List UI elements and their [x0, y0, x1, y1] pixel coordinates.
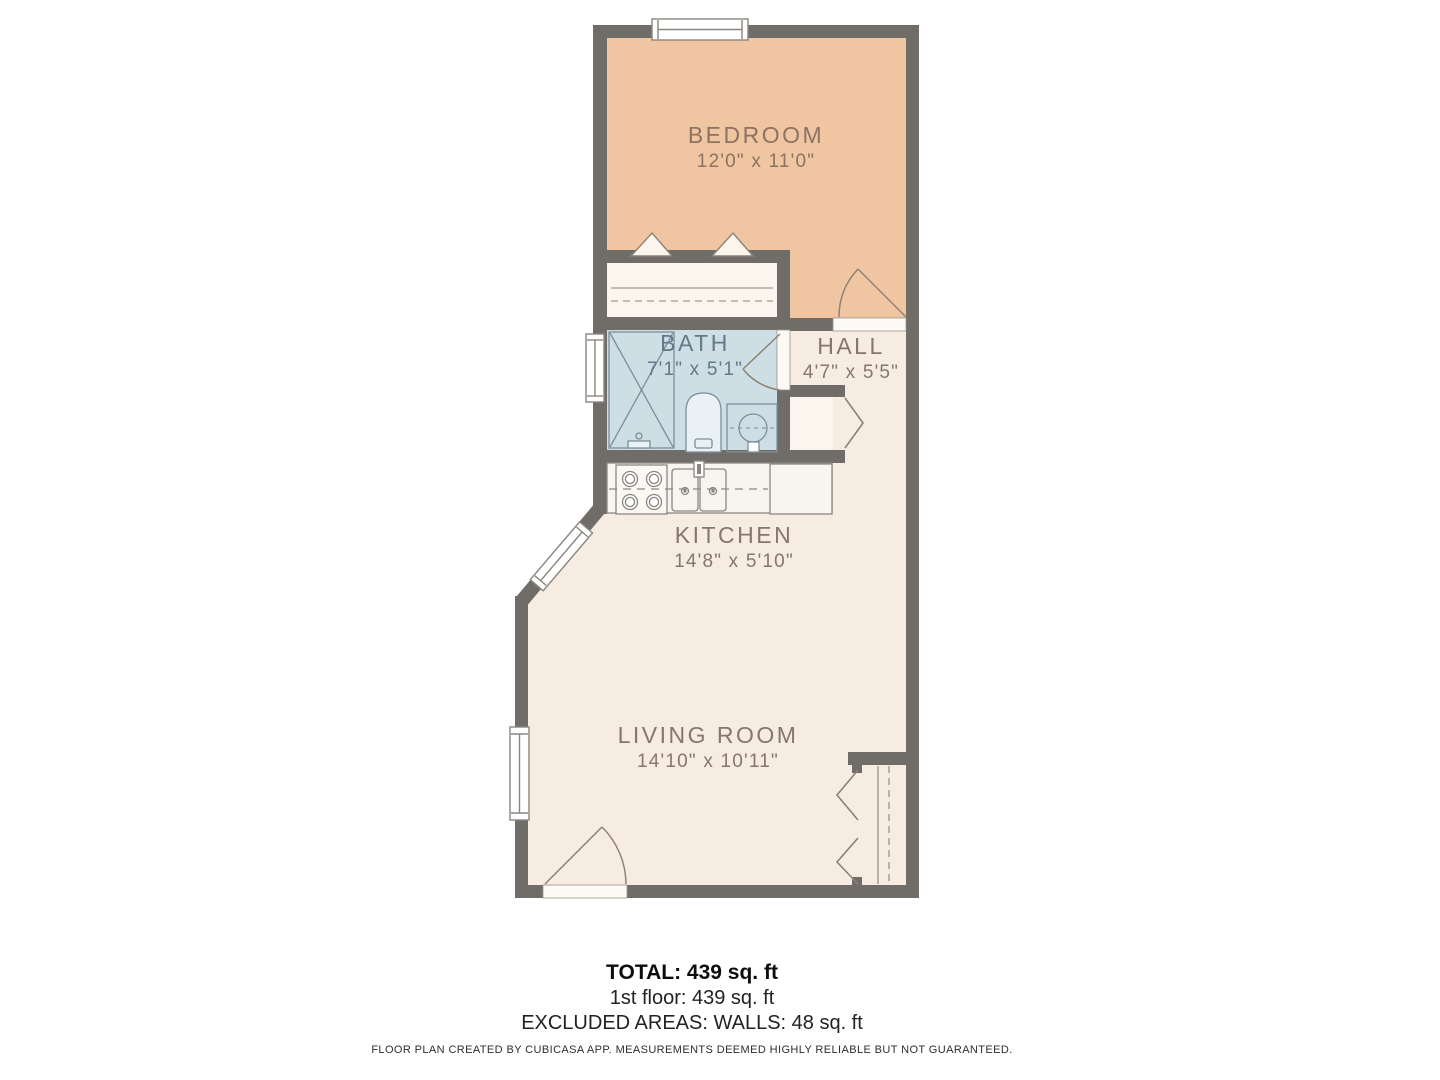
floor-plan-drawing	[0, 0, 1440, 1080]
door-sill-bedroom	[833, 318, 906, 331]
area-summary: TOTAL: 439 sq. ft 1st floor: 439 sq. ft …	[0, 960, 1384, 1036]
floorplan-page: { "plan": { "title": "1st floor plan", "…	[0, 0, 1440, 1080]
wall-left-upper	[593, 25, 607, 514]
bedroom-closet-floor	[607, 263, 777, 317]
window-living-left	[510, 727, 529, 820]
wall-bedroom-bottom-left	[593, 250, 790, 263]
excluded-areas: EXCLUDED AREAS: WALLS: 48 sq. ft	[0, 1011, 1384, 1036]
wall-top	[593, 25, 919, 38]
wall-living-closet-stub	[848, 752, 906, 765]
first-floor-area: 1st floor: 439 sq. ft	[0, 986, 1384, 1011]
wall-bath-top	[593, 317, 790, 330]
kitchen-fixtures	[607, 461, 832, 514]
wall-right	[906, 25, 919, 898]
toilet-icon	[686, 393, 721, 452]
door-sill-bath	[777, 330, 790, 390]
wall-bedroom-bottom-right	[784, 318, 833, 331]
window-bedroom-top	[652, 19, 748, 40]
window-bath-left	[586, 334, 604, 402]
hall-closet-floor	[790, 397, 833, 450]
disclaimer-note: FLOOR PLAN CREATED BY CUBICASA APP. MEAS…	[0, 1044, 1384, 1056]
door-sill-entry	[543, 885, 627, 898]
kitchen-appliance-counter	[770, 464, 832, 514]
total-area: TOTAL: 439 sq. ft	[0, 960, 1384, 986]
